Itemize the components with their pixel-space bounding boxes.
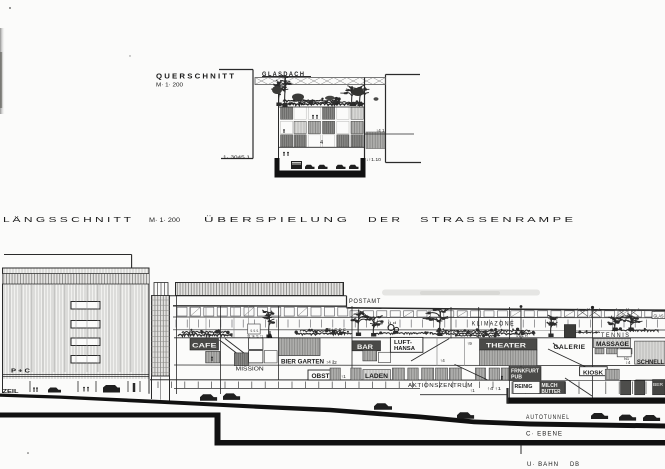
svg-text:↓↑1.10: ↓↑1.10 [366,157,382,162]
svg-text:↑9: ↑9 [467,341,472,346]
svg-text:↑1↑1↑1: ↑1↑1↑1 [250,328,260,333]
svg-text:Q U E R S C H N I T T: Q U E R S C H N I T T [156,74,235,81]
svg-text:T E N N I S: T E N N I S [601,333,629,339]
svg-text:BIER GARTEN: BIER GARTEN [281,359,324,366]
svg-text:OBST: OBST [312,374,330,380]
svg-text:L Ä N G S S C H N I T T: L Ä N G S S C H N I T T [3,215,132,224]
svg-text:SCHNELL: SCHNELL [637,359,664,366]
svg-text:↑4: ↑4 [440,358,445,363]
svg-text:REINIG: REINIG [515,384,533,390]
svg-text:K L I M A Z O N E: K L I M A Z O N E [472,322,514,328]
svg-text:LADEN: LADEN [365,374,388,380]
svg-text:↑2: ↑2 [332,360,337,365]
svg-text:DB: DB [570,461,580,468]
svg-text:KIOSK: KIOSK [583,370,604,376]
svg-text:MASSAGE: MASSAGE [596,342,629,348]
svg-text:C· EBENE: C· EBENE [526,431,563,438]
svg-text:1· 3045 1: 1· 3045 1 [223,155,251,160]
svg-text:BUTTER: BUTTER [542,389,561,395]
svg-text:4: 4 [320,140,323,146]
svg-text:LUFT-: LUFT- [394,340,412,346]
svg-text:T I E R E: T I E R E [328,329,346,335]
svg-text:↑4 ↑1: ↑4 ↑1 [487,386,502,391]
svg-text:↑1: ↑1 [470,388,475,393]
svg-text:MISSION: MISSION [236,367,264,373]
svg-text:AUTOTUNNEL: AUTOTUNNEL [526,415,570,421]
svg-text:BER: BER [653,382,664,387]
svg-text:PUB: PUB [511,375,522,381]
svg-text:U· BAHN: U· BAHN [527,461,559,468]
svg-text:↕4 1: ↕4 1 [376,128,385,133]
svg-text:HANSA: HANSA [394,346,415,352]
svg-text:⇕1 1 H: ⇕1 1 H [516,333,528,338]
svg-text:↑1 ↑4 ↑1 ↑1: ↑1 ↑4 ↑1 ↑1 [247,334,264,339]
svg-text:Ü B E R S P I E L U N G: Ü B E R S P I E L U N G [204,215,347,224]
svg-text:S T R A S S E N R A M P E: S T R A S S E N R A M P E [420,215,573,224]
svg-text:N1: N1 [624,356,630,361]
svg-text:M· 1· 200: M· 1· 200 [156,83,183,89]
svg-text:ü d: ü d [388,321,396,325]
svg-text:AKTIONSZENTRUM: AKTIONSZENTRUM [408,383,473,389]
svg-text:GLAS: GLAS [654,313,664,319]
svg-text:P + C: P + C [11,369,31,375]
svg-text:CAFE: CAFE [192,343,218,350]
svg-text:POSTAMT: POSTAMT [349,299,381,305]
svg-text:↑1: ↑1 [341,374,346,379]
svg-text:D E R: D E R [368,215,400,224]
svg-text:THEATER: THEATER [486,343,526,350]
svg-text:BAR: BAR [357,344,373,351]
svg-text:M· 1· 200: M· 1· 200 [149,218,181,224]
